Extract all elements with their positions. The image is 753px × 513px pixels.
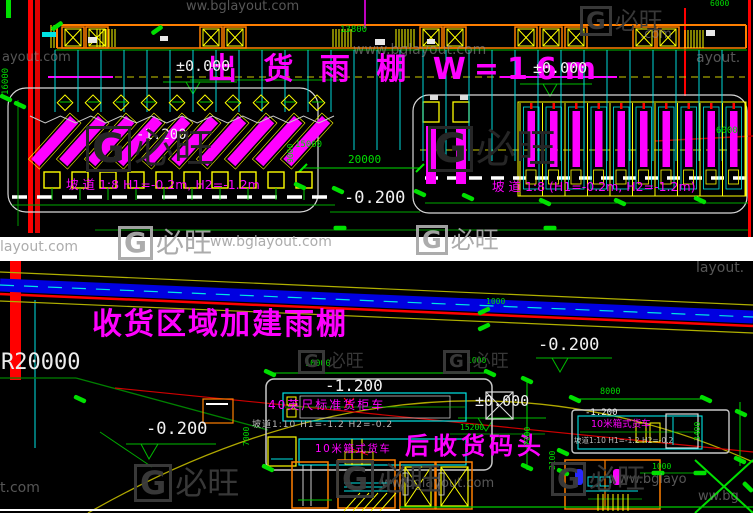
cad-linework <box>0 0 753 513</box>
cad-screenshot: 出 货 雨 棚 W=16m 坡 道 1:8 H1=-0.2m, H2=-1.2m… <box>0 0 753 513</box>
